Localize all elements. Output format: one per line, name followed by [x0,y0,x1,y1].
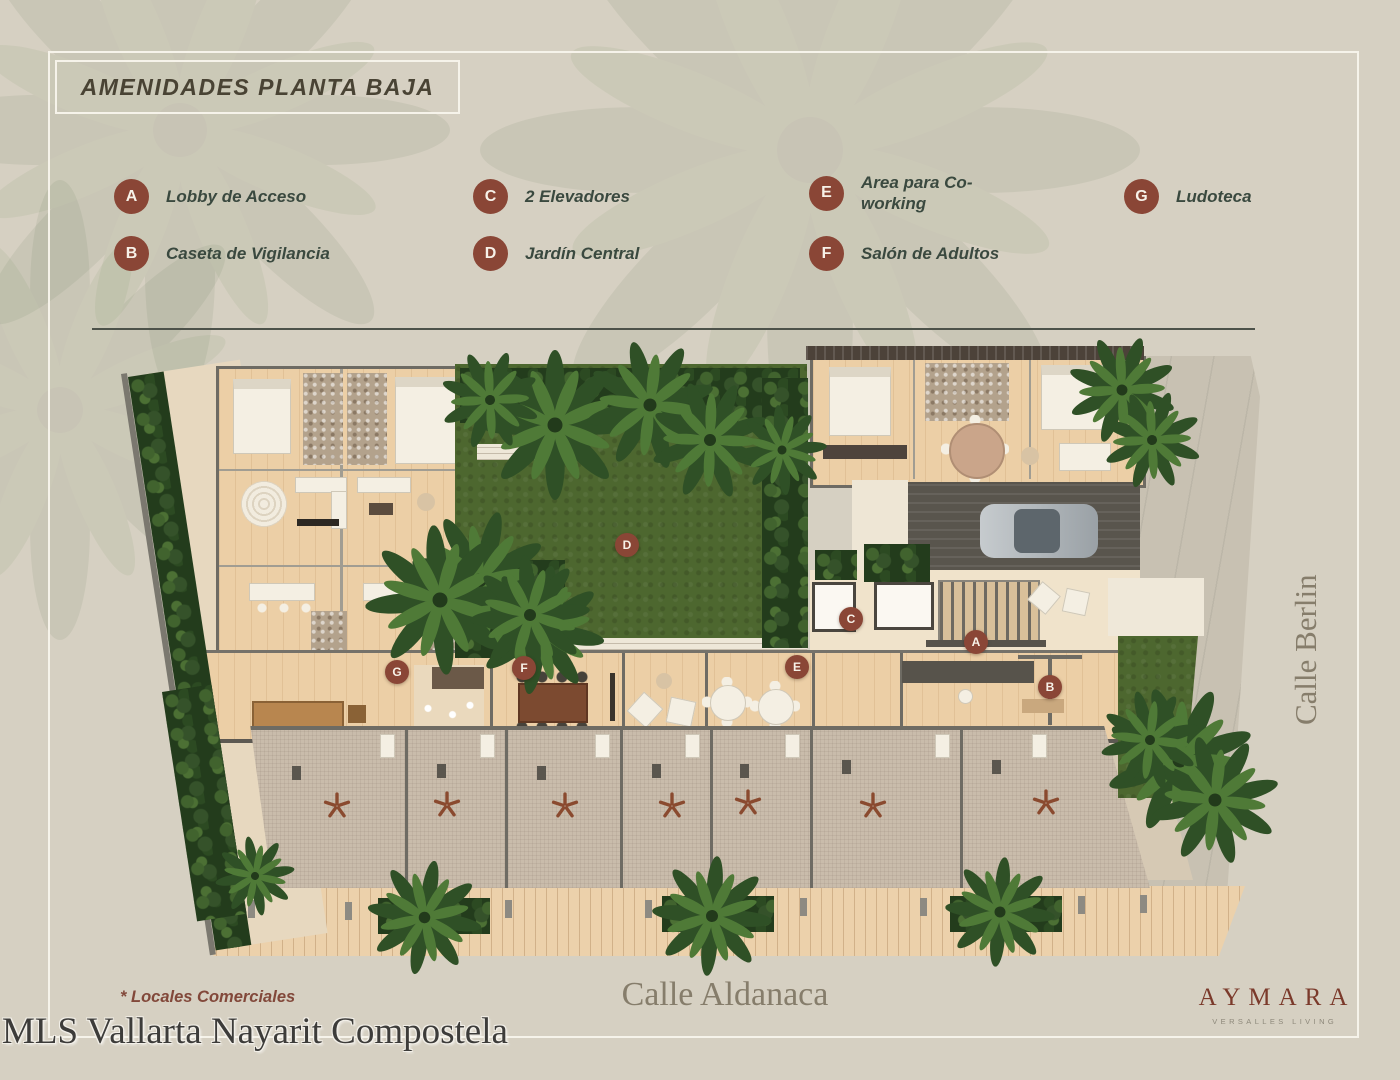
legend-item-f: F Salón de Adultos [809,236,999,271]
fireplace [610,673,615,721]
wall-lamp [842,760,851,774]
dining-table [949,423,1005,479]
side-table [1021,447,1039,465]
stairs [938,580,1040,642]
legend-label: 2 Elevadores [525,186,630,207]
planter [864,544,930,582]
marker-b-icon: B [114,236,149,271]
brand-logo: AYMARA VERSALLES LIVING [1198,984,1348,1026]
wc-fixture [595,734,610,758]
bollard [505,900,512,918]
path-right [1108,578,1204,636]
armchair [666,697,697,728]
commercial-star-icon [733,788,763,818]
driveway [908,482,1140,576]
commercial-star-icon [657,791,687,821]
armchair [627,692,664,729]
commercial-star-icon [858,791,888,821]
elevator [874,582,934,630]
legend-label: Caseta de Vigilancia [166,243,330,264]
marker-c-icon: C [473,179,508,214]
street-label-bottom: Calle Aldanaca [600,976,850,1014]
wc-fixture [480,734,495,758]
stool [958,689,973,704]
plan-marker-f: F [512,656,536,680]
unit-divider [505,726,508,888]
page-title: AMENIDADES PLANTA BAJA [81,74,435,101]
bathroom [303,373,343,465]
plan-marker-a: A [964,630,988,654]
page: AMENIDADES PLANTA BAJA A Lobby de Acceso… [0,0,1400,1080]
wall-lamp [740,764,749,778]
legend-item-g: G Ludoteca [1124,179,1252,214]
wc-fixture [1032,734,1047,758]
commercial-star-icon [550,791,580,821]
brand-subtitle: VERSALLES LIVING [1198,1017,1351,1026]
wall-lamp [537,766,546,780]
floor-plan: D C A B G F E [0,0,1400,1080]
rug [241,481,287,527]
bathroom [925,363,1009,421]
legend-label: Salón de Adultos [861,243,999,264]
car [980,504,1098,558]
bollard [1078,896,1085,914]
divider-rule [92,328,1255,330]
unit-divider [810,726,813,888]
bollard [345,902,352,920]
wall-lamp [652,764,661,778]
wc-fixture [380,734,395,758]
plan-marker-d: D [615,533,639,557]
legend-label: Lobby de Acceso [166,186,306,207]
wall-lamp [992,760,1001,774]
title-box: AMENIDADES PLANTA BAJA [55,60,460,114]
reception-desk [902,661,1034,683]
bed [829,367,891,436]
bed [233,379,291,454]
unit-divider [620,726,623,888]
interior-wall [913,359,915,479]
legend-item-c: C 2 Elevadores [473,179,630,214]
street-label-right: Calle Berlin [1288,535,1324,725]
marker-a-icon: A [114,179,149,214]
bathroom [347,373,387,465]
plan-marker-g: G [385,660,409,684]
side-table [348,705,366,723]
pouf [656,673,672,689]
plan-marker-c: C [839,607,863,631]
bollard [1140,895,1147,913]
wall-lamp [292,766,301,780]
bathroom [311,611,347,653]
legend-item-b: B Caseta de Vigilancia [114,236,330,271]
wc-fixture [685,734,700,758]
marker-e-icon: E [809,176,844,211]
sofa [357,477,411,493]
legend-item-d: D Jardín Central [473,236,639,271]
armchair [1062,588,1090,616]
brand-name: AYMARA [1198,984,1356,1012]
legend-label: Jardín Central [525,243,639,264]
commercial-star-icon [322,791,352,821]
plan-marker-b: B [1038,675,1062,699]
legend-item-e: E Area para Co-working [809,172,973,215]
legend-label: Area para Co-working [861,172,973,215]
bar-stools [251,603,315,613]
marker-d-icon: D [473,236,508,271]
watermark: MLS Vallarta Nayarit Compostela [2,1010,508,1053]
bollard [920,898,927,916]
interior-wall [219,469,459,471]
car-roof [1014,509,1060,553]
kitchen-island [249,583,315,601]
wall [246,726,1116,730]
plan-marker-e: E [785,655,809,679]
commercial-star-icon [1031,788,1061,818]
legend-item-a: A Lobby de Acceso [114,179,306,214]
booth-desk [1022,699,1064,713]
wc-fixture [935,734,950,758]
planter [815,550,857,580]
coffee-table [369,503,393,515]
bollard [800,898,807,916]
legend-label: Ludoteca [1176,186,1252,207]
wall-lamp [437,764,446,778]
palm-icon [940,852,1059,971]
marker-g-icon: G [1124,179,1159,214]
commercial-star-icon [432,790,462,820]
tv-console [297,519,339,526]
commercial-note: * Locales Comerciales [120,988,295,1007]
palm-icon [358,851,491,984]
cowork-table [710,685,746,721]
cowork-table [758,689,794,725]
wc-fixture [785,734,800,758]
marker-f-icon: F [809,236,844,271]
